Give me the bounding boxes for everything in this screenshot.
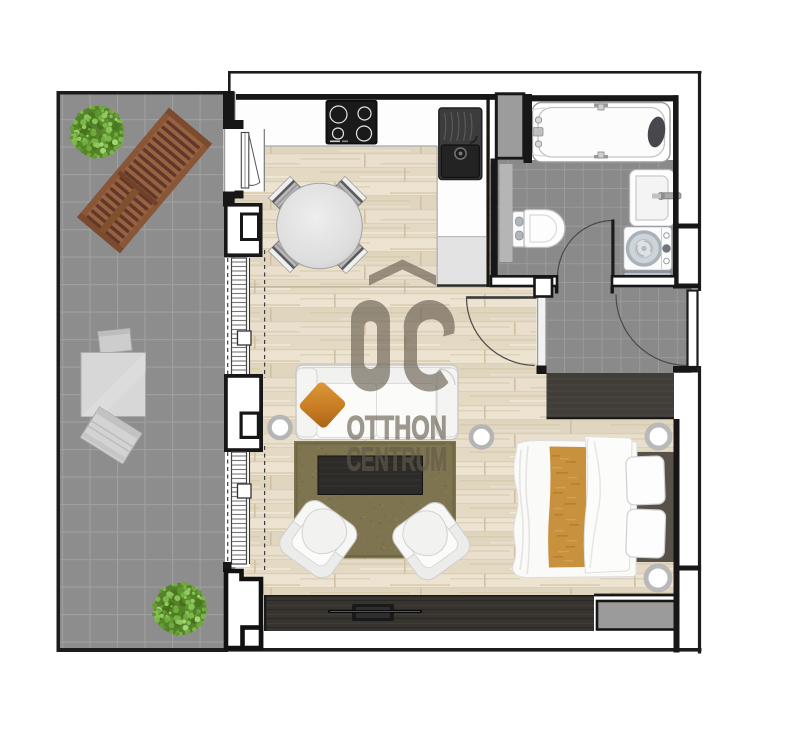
svg-text:CENTRUM: CENTRUM <box>347 440 448 477</box>
